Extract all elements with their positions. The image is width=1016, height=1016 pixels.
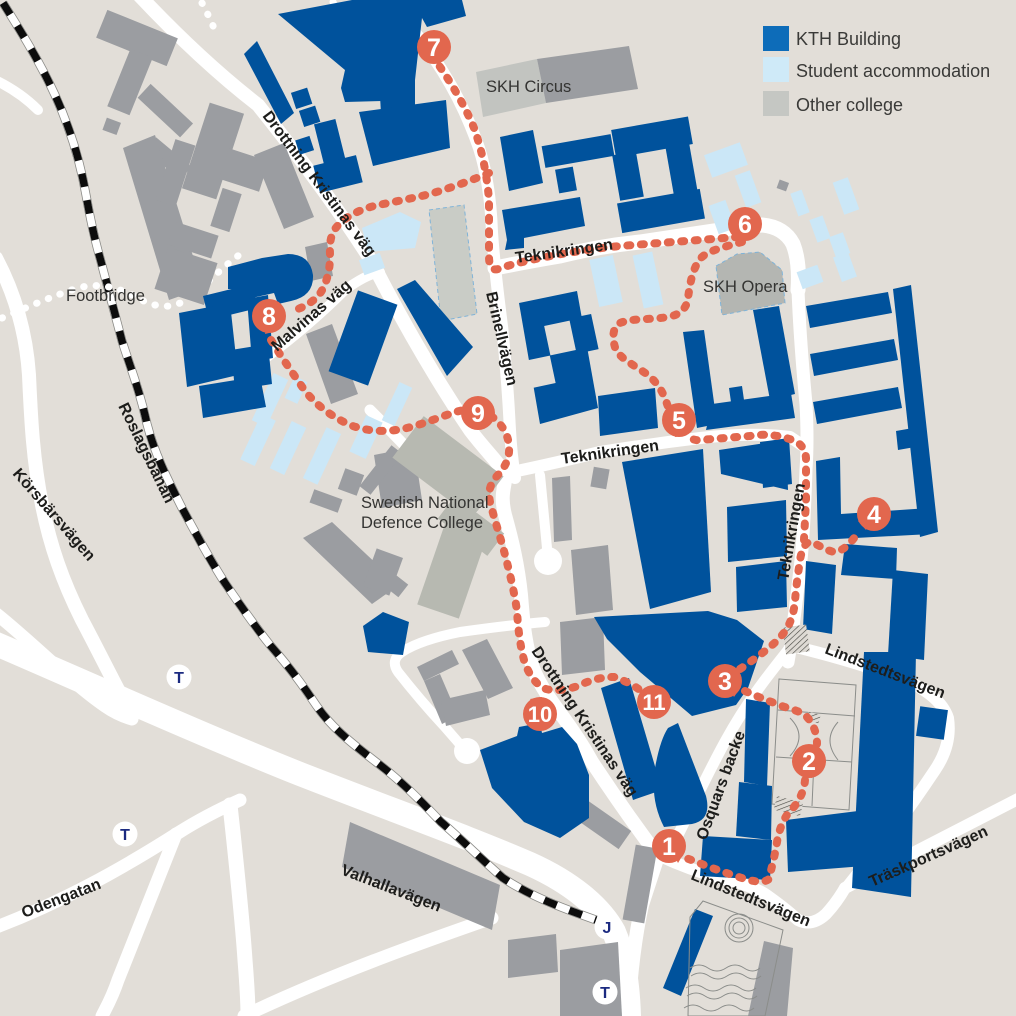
svg-text:Defence College: Defence College	[361, 514, 483, 532]
svg-text:Other college: Other college	[796, 95, 903, 115]
svg-text:8: 8	[262, 303, 276, 331]
svg-text:SKH Circus: SKH Circus	[486, 78, 571, 96]
svg-text:SKH Opera: SKH Opera	[703, 278, 788, 296]
svg-text:6: 6	[738, 211, 752, 239]
svg-text:T: T	[174, 670, 184, 687]
svg-text:7: 7	[427, 34, 441, 62]
svg-text:11: 11	[642, 690, 665, 715]
svg-text:5: 5	[672, 407, 686, 435]
svg-text:J: J	[603, 920, 612, 937]
svg-text:KTH Building: KTH Building	[796, 29, 901, 49]
svg-text:9: 9	[471, 400, 485, 428]
svg-text:T: T	[600, 985, 610, 1002]
svg-text:2: 2	[802, 748, 816, 776]
svg-text:Swedish National: Swedish National	[361, 494, 489, 512]
svg-text:T: T	[120, 827, 130, 844]
svg-text:Footbridge: Footbridge	[66, 287, 145, 305]
svg-text:1: 1	[662, 833, 676, 861]
svg-text:10: 10	[528, 702, 552, 727]
svg-text:Student accommodation: Student accommodation	[796, 61, 990, 81]
svg-text:3: 3	[718, 668, 732, 696]
svg-text:4: 4	[867, 501, 881, 529]
